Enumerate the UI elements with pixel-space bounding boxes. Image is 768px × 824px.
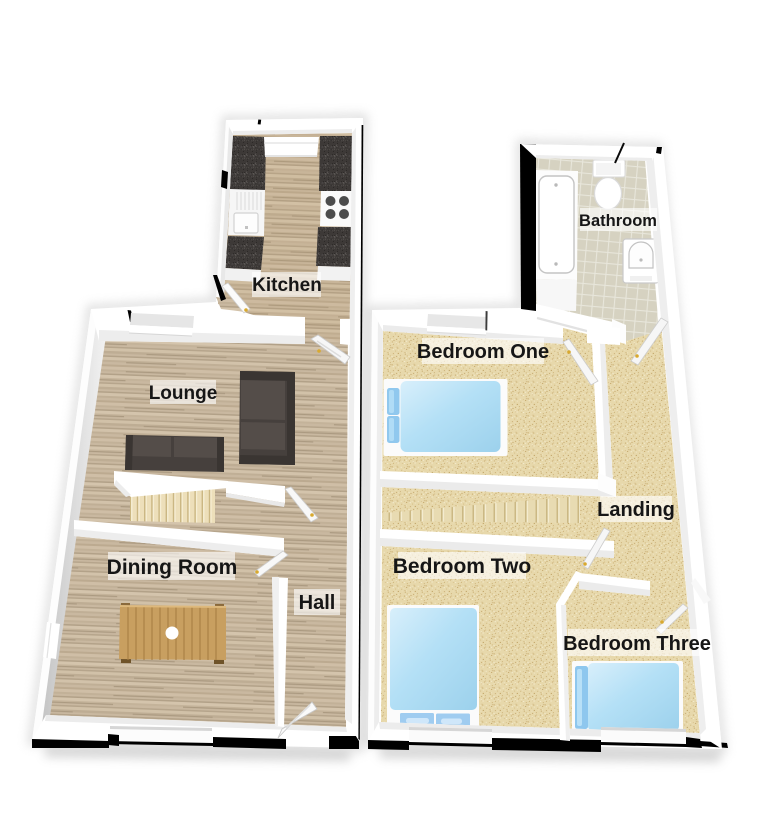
svg-text:Bedroom Three: Bedroom Three — [563, 633, 711, 655]
svg-text:Bathroom: Bathroom — [579, 212, 657, 230]
svg-text:Kitchen: Kitchen — [252, 275, 322, 296]
svg-text:Lounge: Lounge — [149, 383, 218, 404]
svg-text:Bedroom Two: Bedroom Two — [393, 555, 531, 578]
svg-text:Bedroom One: Bedroom One — [417, 341, 549, 363]
svg-text:Dining Room: Dining Room — [107, 556, 238, 579]
svg-text:Hall: Hall — [299, 592, 336, 614]
svg-text:Landing: Landing — [597, 499, 675, 521]
